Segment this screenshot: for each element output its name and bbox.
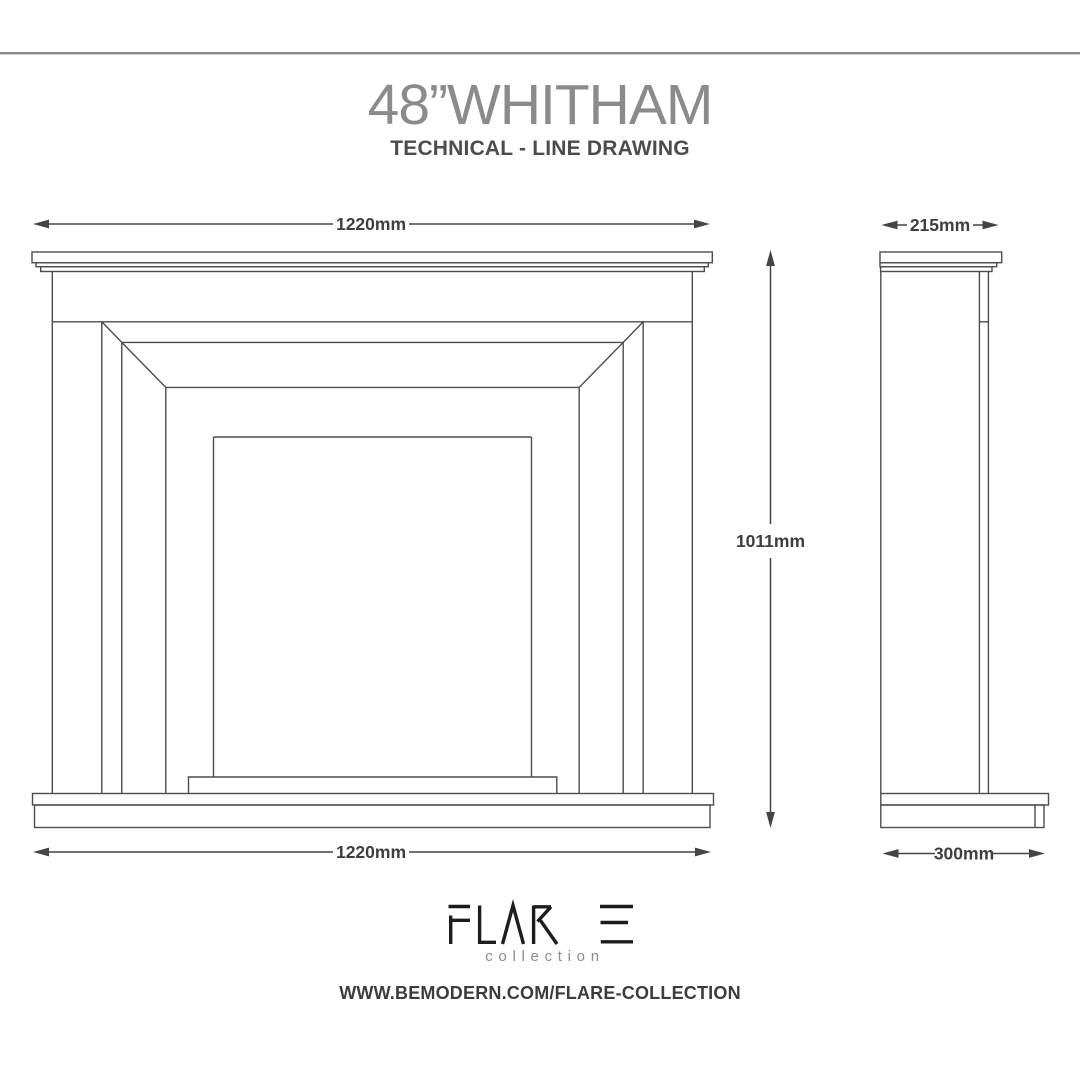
arrow-left-icon (33, 848, 49, 857)
arrow-left-icon (33, 220, 49, 229)
arrow-left-icon (882, 221, 898, 230)
arrow-right-icon (694, 220, 710, 229)
front-elevation-view (32, 252, 714, 828)
dim-label-front-width-bottom: 1220mm (336, 842, 406, 862)
arrow-right-icon (983, 221, 999, 230)
dim-side-depth-top: 215mm (882, 215, 999, 235)
arrow-left-icon (883, 849, 899, 858)
dim-front-width-top: 1220mm (33, 214, 710, 234)
side-mantel-shelf (880, 252, 1002, 272)
front-inner-legs (102, 322, 643, 794)
front-frame-band-outer (102, 322, 643, 794)
arrow-right-icon (695, 848, 711, 857)
front-body-outline (52, 272, 692, 794)
arrow-down-icon (766, 812, 775, 828)
dim-front-height: 1011mm (736, 250, 805, 828)
front-fire-bed (189, 777, 557, 794)
side-plinth (881, 794, 1049, 828)
front-frame-band-inner (122, 342, 623, 793)
brand-collection-label: collection (0, 948, 1080, 965)
dim-front-width-bottom: 1220mm (33, 842, 711, 862)
website-url: WWW.BEMODERN.COM/FLARE-COLLECTION (0, 983, 1080, 1004)
spec-sheet: 48”WHITHAM TECHNICAL - LINE DRAWING (0, 0, 1080, 1080)
front-plinth (33, 794, 714, 828)
logo-letter-e (600, 907, 633, 942)
dim-label-front-width-top: 1220mm (336, 214, 406, 234)
logo-letter-f (449, 907, 471, 945)
side-elevation-view (880, 252, 1049, 828)
dim-side-depth-bottom: 300mm (883, 844, 1046, 864)
logo-letter-l (480, 906, 496, 943)
dim-label-front-height: 1011mm (736, 531, 805, 551)
front-mantel-shelf (32, 252, 712, 272)
arrow-right-icon (1029, 849, 1045, 858)
logo-letter-a (503, 906, 524, 945)
side-body-outline (881, 272, 989, 794)
dimension-annotations: 1220mm 1220mm 1011mm 215mm (33, 214, 1045, 864)
logo-letter-r (534, 906, 557, 944)
dim-label-side-depth-bottom: 300mm (934, 844, 994, 864)
front-fire-opening (214, 437, 532, 777)
arrow-up-icon (766, 250, 775, 266)
dim-label-side-depth-top: 215mm (910, 215, 970, 235)
flare-logo (449, 906, 634, 945)
technical-drawing: 1220mm 1220mm 1011mm 215mm (0, 0, 1080, 1080)
